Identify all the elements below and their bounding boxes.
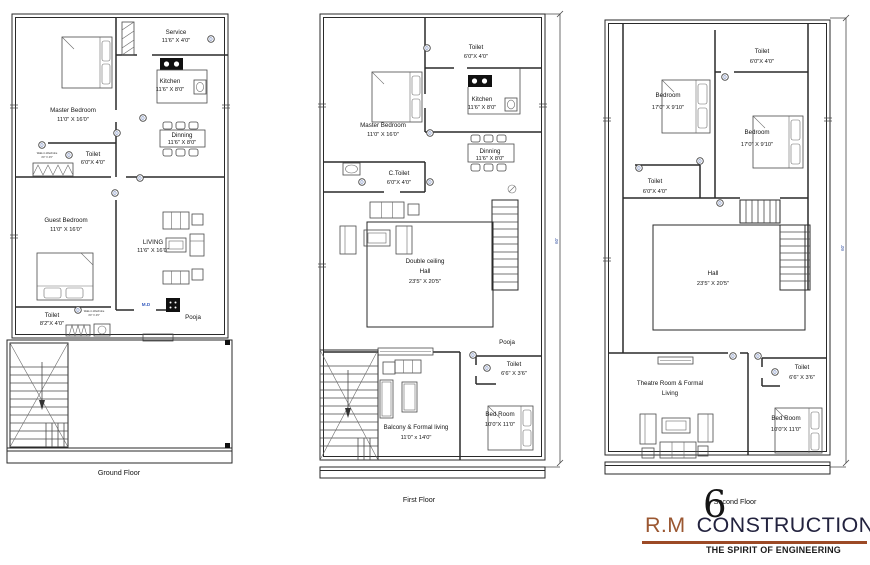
svg-text:D: D [637, 166, 640, 171]
svg-text:D: D [723, 75, 726, 80]
guest-bed-icon [37, 253, 93, 300]
room-label-pooja: Pooja [499, 339, 515, 346]
room-dim-kitchen: 11'6" X 8'0" [156, 87, 185, 93]
room-label-living: LIVING [143, 239, 163, 246]
room-dim-bedroom-left: 17'0" X 9'10" [652, 105, 684, 111]
room-dim-hall: 23'5" X 20'5" [409, 279, 441, 285]
room-label-hall-1: Double ceiling [406, 258, 445, 265]
door-tag: D [697, 158, 704, 165]
main-door-label: M.D [142, 302, 151, 307]
door-tag: D [772, 369, 779, 376]
staircase [10, 343, 68, 447]
door-tag: D [75, 307, 82, 314]
svg-text:D: D [718, 201, 721, 206]
door-tag: D [112, 190, 119, 197]
room-label-pooja: Pooja [185, 314, 201, 321]
door-tag: D [66, 152, 73, 159]
svg-text:D: D [428, 131, 431, 136]
stove-icon [468, 75, 492, 87]
logo-tagline: THE SPIRIT OF ENGINEERING [680, 545, 867, 555]
room-label-c-toilet: C.Toilet [389, 170, 410, 177]
room-dim-toilet-top: 6'0"X 4'0" [464, 54, 488, 60]
room-dim-toilet-mid: 6'0"X 4'0" [81, 160, 105, 166]
svg-text:D: D [76, 308, 79, 313]
room-dim-master-bedroom: 11'0" X 16'0" [367, 132, 399, 138]
door-tag: D [427, 179, 434, 186]
room-label-theatre-2: Living [662, 390, 679, 397]
room-dim-bed-room: 10'0"X 11'0" [771, 427, 801, 433]
svg-text:D: D [360, 180, 363, 185]
logo-brand-left: R.M [645, 513, 686, 537]
room-label-toilet-br: Toilet [795, 364, 810, 371]
wardrobe-hatch [33, 163, 73, 176]
room-label-dinning: Dinning [480, 148, 502, 155]
svg-text:D: D [40, 143, 43, 148]
washbasin-icon [343, 163, 360, 175]
svg-text:D: D [731, 354, 734, 359]
bed-icon [62, 37, 112, 88]
room-dim-dinning: 11'6" X 8'0" [168, 140, 197, 146]
logo-brand: R.MCONSTRUCTION [645, 513, 870, 538]
room-dim-toilet-top: 6'0"X 4'0" [750, 59, 774, 65]
room-dim-dinning: 11'6" X 8'0" [476, 156, 505, 162]
svg-text:D: D [115, 131, 118, 136]
first-floor-plan: 60' [314, 4, 566, 509]
dimension-line: 60' [830, 15, 849, 467]
room-label-master-bedroom: Master Bedroom [50, 107, 96, 114]
balcony-furniture [380, 360, 421, 418]
room-dim-toilet-left: 6'0"X 4'0" [643, 189, 667, 195]
theatre-rail [658, 357, 693, 364]
room-dim-guest-bedroom: 11'0" X 16'0" [50, 227, 82, 233]
room-dim-kitchen: 11'6" X 8'0" [468, 105, 497, 111]
walls-second [603, 20, 832, 474]
room-label-kitchen: Kitchen [472, 96, 493, 103]
room-label-toilet-top: Toilet [469, 44, 484, 51]
room-label-theatre-1: Theatre Room & Formal [637, 380, 703, 387]
room-dim-living: 11'6" X 16'0" [137, 248, 169, 254]
door-tag: D [730, 353, 737, 360]
room-dim-master-bedroom: 11'0" X 16'0" [57, 117, 89, 123]
room-label-service: Service [166, 29, 187, 36]
room-label-toilet-bottom: Toilet [45, 312, 60, 319]
room-label-bedroom-right: Bedroom [744, 129, 769, 136]
ground-floor-plan: D D D D D D D D Master Bedroom 11'0" X 1… [6, 10, 240, 480]
logo-underline [642, 541, 867, 544]
svg-text:D: D [756, 354, 759, 359]
room-label-master-bedroom: Master Bedroom [360, 122, 406, 129]
room-label-kitchen: Kitchen [160, 78, 181, 85]
svg-text:60': 60' [840, 245, 845, 251]
svg-text:D: D [209, 37, 212, 42]
room-label-dinning: Dinning [172, 132, 194, 139]
dimension-line: 60' [545, 11, 563, 467]
room-dim-toilet-br: 6'6" X 3'6" [789, 375, 815, 381]
room-label-bed-room: Bed Room [485, 411, 514, 418]
stove-icon [160, 58, 183, 70]
pooja-icon [166, 298, 180, 312]
door-tag: D [722, 74, 729, 81]
room-dim-service: 11'6" X 4'0" [162, 38, 191, 44]
balcony-rail [378, 348, 433, 355]
sofa-set-icon [163, 212, 204, 284]
floor-title-ground: Ground Floor [98, 468, 141, 477]
room-label-bedroom-left: Bedroom [655, 92, 680, 99]
door-tag: D [208, 36, 215, 43]
room-dim-balcony: 11'0" x 14'0" [401, 435, 432, 441]
logo-brand-right: CONSTRUCTION [697, 513, 870, 537]
door-tag: D [470, 352, 477, 359]
dining-set-icon [160, 122, 205, 156]
door-tag: D [427, 130, 434, 137]
room-dim-toilet-bottom: 8'2"X 4'0" [40, 321, 64, 327]
sofa-set-icon [340, 202, 419, 254]
door-tag: D [755, 353, 762, 360]
svg-text:D: D [428, 180, 431, 185]
room-label-hall: Hall [708, 270, 719, 277]
shaft-hatch [122, 22, 134, 55]
door-tag: D [636, 165, 643, 172]
room-label-balcony: Balcony & Formal living [384, 424, 449, 431]
svg-text:D: D [425, 46, 428, 51]
company-logo: 6 R.MCONSTRUCTION THE SPIRIT OF ENGINEER… [645, 489, 867, 561]
room-label-guest-bedroom: Guest Bedroom [44, 217, 87, 224]
door-tag: D [359, 179, 366, 186]
note-wardrobe-line2: 4'0" X 4'0" [41, 155, 53, 159]
fan-icon [508, 185, 516, 193]
room-label-toilet-top: Toilet [755, 48, 770, 55]
door-tag: D [484, 365, 491, 372]
room-dim-hall: 23'5" X 20'5" [697, 281, 729, 287]
room-label-bed-room: Bed Room [771, 415, 800, 422]
room-label-toilet-left: Toilet [648, 178, 663, 185]
door-tag: D [424, 45, 431, 52]
svg-text:D: D [773, 370, 776, 375]
staircase-right [492, 200, 518, 290]
stair-opening [740, 200, 780, 223]
room-label-hall-2: Hall [420, 268, 431, 275]
svg-text:D: D [138, 176, 141, 181]
note-toilet-line2: 4'0" X 4'0" [88, 313, 100, 317]
svg-text:D: D [141, 116, 144, 121]
door-tag: D [114, 130, 121, 137]
svg-text:D: D [485, 366, 488, 371]
hall-void-outline [653, 225, 805, 330]
floor-plan-sheet: D D D D D D D D Master Bedroom 11'0" X 1… [0, 0, 870, 565]
svg-text:D: D [698, 159, 701, 164]
door-tag: D [137, 175, 144, 182]
door-tag: D [717, 200, 724, 207]
svg-text:D: D [113, 191, 116, 196]
door-tag: D [140, 115, 147, 122]
staircase [320, 350, 378, 460]
walls-first [318, 14, 547, 478]
note-toilet-line1: Walk-in Wardrobe [84, 309, 105, 313]
svg-text:D: D [67, 153, 70, 158]
room-label-toilet-br: Toilet [507, 361, 522, 368]
room-dim-bedroom-right: 17'0" X 9'10" [741, 142, 773, 148]
door-tag: D [39, 142, 46, 149]
svg-text:D: D [471, 353, 474, 358]
room-dim-bed-room: 10'0"X 11'0" [485, 422, 515, 428]
note-wardrobe-line1: Walk-in Wardrobe [37, 151, 58, 155]
room-dim-c-toilet: 6'0"X 4'0" [387, 180, 411, 186]
second-floor-plan: 60' [600, 8, 856, 508]
bed-icon [372, 72, 422, 122]
svg-text:60': 60' [554, 238, 559, 244]
room-label-toilet-mid: Toilet [86, 151, 101, 158]
room-dim-toilet-br: 6'6" X 3'6" [501, 371, 527, 377]
floor-title-first: First Floor [403, 495, 436, 504]
